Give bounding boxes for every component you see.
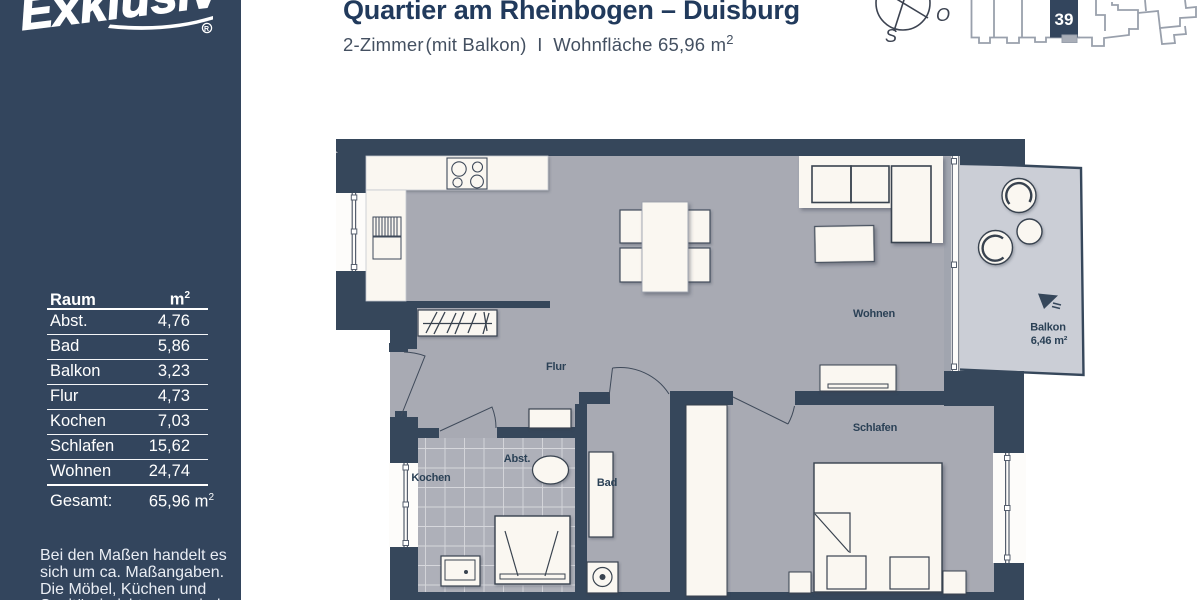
svg-text:Schlafen: Schlafen <box>853 422 898 434</box>
svg-text:S: S <box>885 26 897 46</box>
svg-text:Bad: Bad <box>597 477 617 489</box>
svg-text:Abst.: Abst. <box>504 453 531 465</box>
svg-text:O: O <box>936 5 950 25</box>
svg-text:6,46 m²: 6,46 m² <box>1031 335 1068 347</box>
svg-text:Kochen: Kochen <box>411 472 451 484</box>
svg-text:39: 39 <box>1055 10 1074 29</box>
svg-text:Wohnen: Wohnen <box>853 308 895 320</box>
svg-text:Flur: Flur <box>546 361 567 373</box>
svg-text:Balkon: Balkon <box>1030 322 1066 334</box>
